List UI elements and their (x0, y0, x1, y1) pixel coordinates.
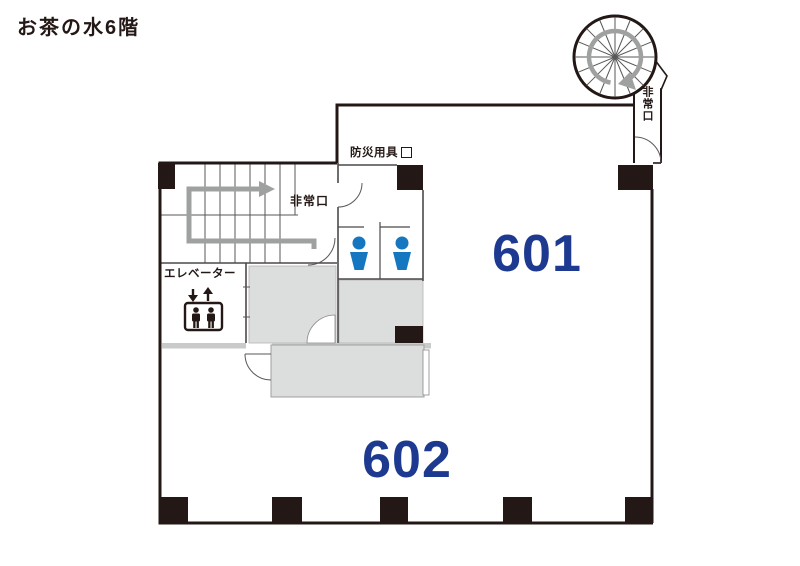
toilet-person-icon (353, 237, 366, 250)
door-arc-spiral-exit (635, 137, 661, 163)
toilet-person-icon (393, 252, 411, 270)
pillar (397, 165, 423, 190)
door-arc-room602 (245, 354, 271, 380)
gray-zone-lower-box (271, 345, 424, 397)
toilet-person-icon (350, 252, 368, 270)
route-arrow-head (259, 181, 275, 197)
emergency-exit-label-stairs: 非常口 (290, 192, 329, 209)
room-number-602: 602 (352, 433, 462, 487)
room-number-601: 601 (482, 227, 592, 281)
elevator-down-arrow-icon (188, 295, 198, 302)
gray-zone-group (162, 266, 431, 397)
emergency-exit-label-spiral: 非常口 (639, 86, 655, 122)
elevator-up-arrow-icon (203, 287, 213, 294)
pillar (380, 497, 408, 523)
stairs-icon (160, 164, 298, 263)
disaster-equipment-box-icon (401, 147, 412, 158)
pillar (503, 497, 532, 523)
floor-plan-page: お茶の水6階 防災用具 非常口 エレベーター 非常口 601 602 (0, 0, 800, 566)
pillar (395, 326, 423, 343)
page-title: お茶の水6階 (17, 11, 140, 40)
pillar (158, 163, 175, 189)
pillar (160, 497, 188, 523)
disaster-equipment-text: 防災用具 (350, 144, 398, 160)
toilet-stall-walls (338, 222, 410, 279)
toilet-person-icon (396, 237, 409, 250)
pillar (625, 497, 653, 523)
elevator-label: エレベーター (164, 265, 236, 281)
opening-marker (423, 350, 429, 395)
elevator-icon (185, 287, 222, 330)
door-arc-equipment-room (338, 183, 362, 207)
pillar (618, 165, 653, 190)
pillar (272, 497, 302, 523)
disaster-equipment-label: 防災用具 (350, 144, 412, 160)
gray-wall-band-left (162, 343, 246, 349)
